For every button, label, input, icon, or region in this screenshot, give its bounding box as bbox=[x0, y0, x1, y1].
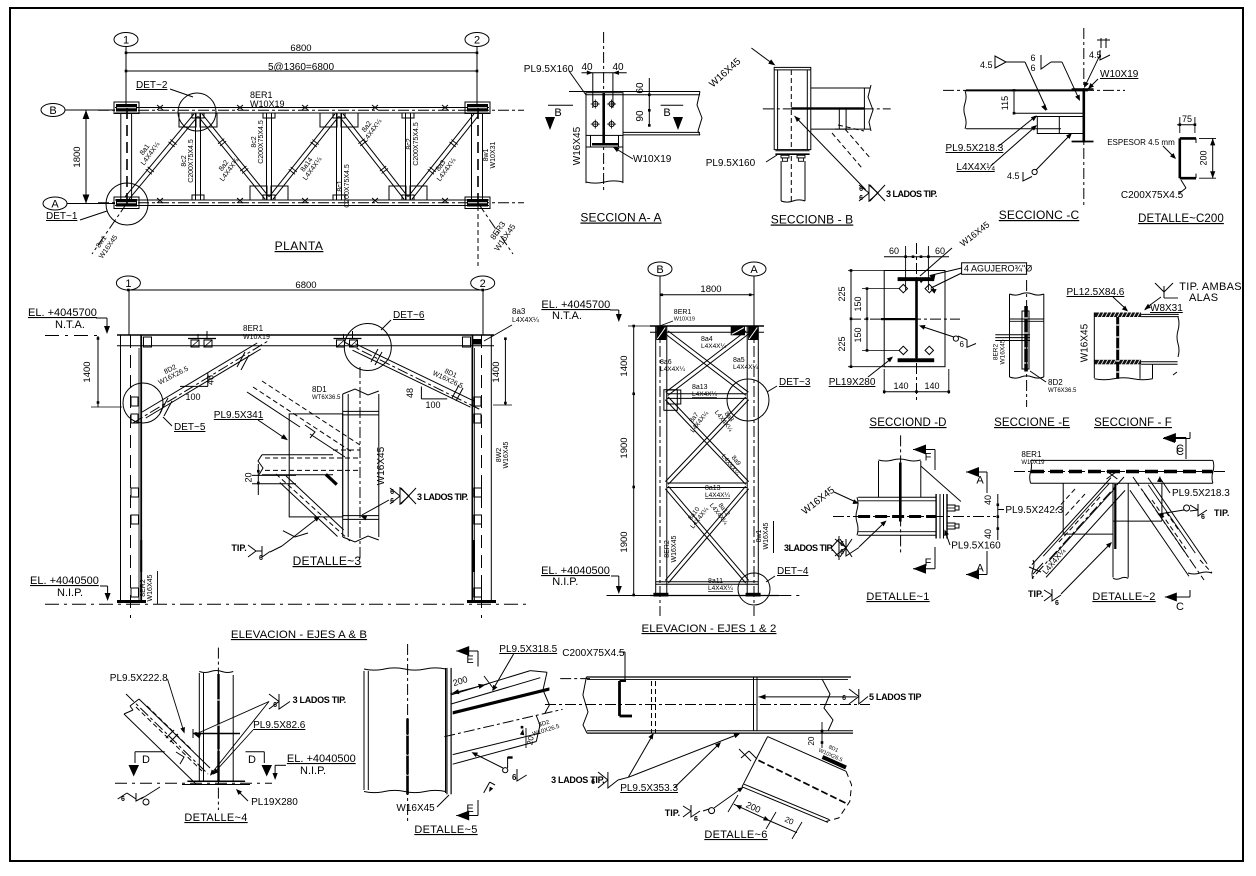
svg-text:4.5: 4.5 bbox=[1007, 171, 1020, 181]
svg-text:PL19X280: PL19X280 bbox=[251, 797, 298, 808]
svg-text:W16X45: W16X45 bbox=[572, 126, 583, 165]
svg-text:6: 6 bbox=[390, 489, 394, 496]
svg-text:6800: 6800 bbox=[290, 43, 311, 54]
svg-text:SECCIONE -E: SECCIONE -E bbox=[994, 417, 1070, 429]
svg-text:ESPESOR 4.5 mm: ESPESOR 4.5 mm bbox=[1107, 138, 1175, 147]
svg-text:PL9.5X82.6: PL9.5X82.6 bbox=[253, 720, 306, 731]
svg-text:W16X45: W16X45 bbox=[376, 446, 387, 485]
svg-text:DET~2: DET~2 bbox=[136, 80, 168, 91]
svg-text:8a13: 8a13 bbox=[705, 485, 721, 492]
svg-text:6: 6 bbox=[859, 186, 863, 193]
svg-text:1400: 1400 bbox=[619, 355, 630, 376]
svg-text:TIP.: TIP. bbox=[1028, 589, 1043, 599]
svg-text:N.I.P.: N.I.P. bbox=[300, 765, 326, 777]
svg-text:6: 6 bbox=[694, 816, 698, 823]
svg-text:4 AGUJERO¾"Ø: 4 AGUJERO¾"Ø bbox=[964, 264, 1032, 274]
svg-text:L4X4X¼: L4X4X¼ bbox=[701, 343, 727, 350]
svg-text:F: F bbox=[925, 557, 932, 569]
svg-text:8ER1: 8ER1 bbox=[243, 324, 264, 333]
svg-text:A: A bbox=[976, 563, 984, 575]
svg-text:DETALLE~4: DETALLE~4 bbox=[184, 812, 247, 824]
svg-text:DETALLE~6: DETALLE~6 bbox=[704, 829, 767, 841]
svg-text:40: 40 bbox=[983, 495, 993, 505]
svg-text:8W2: 8W2 bbox=[496, 448, 503, 463]
svg-text:SECCION A- A: SECCION A- A bbox=[580, 211, 661, 225]
svg-text:8ER2: 8ER2 bbox=[664, 540, 671, 558]
svg-text:40: 40 bbox=[612, 62, 624, 73]
svg-text:DETALLE~2: DETALLE~2 bbox=[1092, 591, 1155, 603]
svg-text:L4X4X¼: L4X4X¼ bbox=[733, 364, 759, 371]
svg-text:SECCIONC -C: SECCIONC -C bbox=[999, 208, 1080, 222]
svg-text:L4X4X¼: L4X4X¼ bbox=[705, 492, 731, 499]
svg-text:SECCIOND -D: SECCIOND -D bbox=[869, 417, 946, 429]
svg-text:W16X45: W16X45 bbox=[1080, 323, 1091, 362]
svg-text:W16X45: W16X45 bbox=[147, 574, 154, 601]
svg-text:20: 20 bbox=[244, 472, 254, 482]
svg-text:W10X19: W10X19 bbox=[1100, 69, 1139, 80]
svg-text:8ER2: 8ER2 bbox=[993, 343, 1000, 360]
svg-text:48: 48 bbox=[405, 388, 415, 398]
svg-text:ALAS: ALAS bbox=[1189, 292, 1218, 304]
svg-text:40: 40 bbox=[983, 529, 993, 539]
svg-text:60: 60 bbox=[935, 246, 945, 256]
svg-text:L4X4X¼: L4X4X¼ bbox=[660, 366, 686, 373]
svg-text:C200X75X4.5: C200X75X4.5 bbox=[1121, 190, 1184, 201]
svg-text:8c1: 8c1 bbox=[337, 180, 344, 191]
svg-text:PL9.5X160: PL9.5X160 bbox=[524, 64, 574, 75]
svg-text:6: 6 bbox=[1030, 53, 1035, 63]
svg-text:PL12.5X84.6: PL12.5X84.6 bbox=[1067, 287, 1125, 298]
svg-text:C: C bbox=[1176, 443, 1184, 455]
svg-text:DET~6: DET~6 bbox=[393, 310, 425, 321]
svg-text:D: D bbox=[248, 754, 256, 766]
svg-text:L4X4X¼: L4X4X¼ bbox=[708, 585, 734, 592]
svg-text:1900: 1900 bbox=[619, 437, 630, 458]
svg-text:6: 6 bbox=[859, 195, 863, 202]
svg-text:W16X45: W16X45 bbox=[503, 441, 510, 468]
svg-text:A: A bbox=[976, 475, 984, 487]
svg-text:ELEVACION - EJES 1 & 2: ELEVACION - EJES 1 & 2 bbox=[642, 623, 777, 635]
svg-text:W10X31: W10X31 bbox=[490, 141, 497, 168]
svg-text:DET~5: DET~5 bbox=[174, 422, 206, 433]
svg-text:1800: 1800 bbox=[72, 146, 83, 167]
svg-text:8ER1: 8ER1 bbox=[1021, 450, 1042, 459]
svg-text:6: 6 bbox=[273, 702, 277, 709]
svg-text:5@1360=6800: 5@1360=6800 bbox=[268, 62, 334, 73]
svg-text:N.T.A.: N.T.A. bbox=[55, 319, 85, 331]
svg-text:6: 6 bbox=[1055, 600, 1059, 607]
svg-text:E: E bbox=[466, 803, 473, 815]
svg-text:6: 6 bbox=[1201, 514, 1205, 521]
svg-text:1400: 1400 bbox=[82, 361, 93, 382]
svg-text:W10X19: W10X19 bbox=[633, 154, 672, 165]
svg-text:DETALLE~5: DETALLE~5 bbox=[414, 824, 477, 836]
svg-text:225: 225 bbox=[837, 286, 847, 301]
svg-text:SECCIONB - B: SECCIONB - B bbox=[771, 213, 854, 227]
svg-text:DET~1: DET~1 bbox=[46, 211, 78, 222]
svg-text:N.T.A.: N.T.A. bbox=[552, 310, 582, 322]
svg-text:3LADOS TIP.: 3LADOS TIP. bbox=[784, 543, 833, 553]
svg-text:8w1: 8w1 bbox=[483, 148, 490, 161]
svg-text:140: 140 bbox=[924, 381, 939, 391]
svg-text:W16X45: W16X45 bbox=[671, 535, 678, 562]
svg-text:DETALLE~1: DETALLE~1 bbox=[866, 591, 929, 603]
svg-text:6: 6 bbox=[840, 549, 844, 556]
svg-text:150: 150 bbox=[853, 327, 863, 342]
svg-text:PL9.5X341: PL9.5X341 bbox=[214, 410, 264, 421]
svg-text:8a4: 8a4 bbox=[701, 336, 713, 343]
svg-text:6: 6 bbox=[591, 779, 595, 786]
svg-text:225: 225 bbox=[837, 336, 847, 351]
svg-text:1400: 1400 bbox=[491, 361, 502, 382]
svg-text:100: 100 bbox=[185, 392, 200, 402]
svg-text:8ER2: 8ER2 bbox=[140, 579, 147, 597]
svg-text:WT6X36.5: WT6X36.5 bbox=[312, 395, 341, 401]
svg-text:100: 100 bbox=[425, 400, 440, 410]
svg-text:N.I.P.: N.I.P. bbox=[57, 587, 83, 599]
svg-text:8c2: 8c2 bbox=[181, 155, 188, 166]
svg-text:8a6: 8a6 bbox=[660, 359, 672, 366]
svg-text:6: 6 bbox=[842, 695, 846, 702]
svg-text:8ER1: 8ER1 bbox=[674, 309, 692, 316]
svg-text:W10X19: W10X19 bbox=[243, 334, 270, 341]
svg-text:B: B bbox=[656, 264, 663, 276]
svg-text:150: 150 bbox=[853, 296, 863, 311]
svg-text:115: 115 bbox=[1000, 96, 1010, 110]
svg-text:E: E bbox=[466, 654, 473, 666]
svg-text:8a3: 8a3 bbox=[512, 307, 526, 316]
svg-text:8a5: 8a5 bbox=[733, 357, 745, 364]
svg-text:3 LADOS TIP.: 3 LADOS TIP. bbox=[417, 492, 468, 502]
svg-text:PL9.5X353.3: PL9.5X353.3 bbox=[620, 783, 678, 794]
svg-text:PL9.5X160: PL9.5X160 bbox=[706, 158, 756, 169]
svg-text:5 LADOS TIP: 5 LADOS TIP bbox=[869, 692, 922, 702]
svg-text:B: B bbox=[663, 107, 670, 119]
svg-text:60: 60 bbox=[889, 246, 899, 256]
svg-text:2: 2 bbox=[480, 278, 486, 290]
svg-text:C200X75X4.5: C200X75X4.5 bbox=[188, 139, 195, 183]
svg-text:L4X4X¼: L4X4X¼ bbox=[692, 391, 718, 398]
svg-text:6: 6 bbox=[121, 796, 125, 803]
svg-text:PLANTA: PLANTA bbox=[275, 239, 324, 253]
svg-text:W8X31: W8X31 bbox=[1150, 303, 1183, 314]
svg-text:8c2: 8c2 bbox=[406, 138, 413, 149]
svg-text:48: 48 bbox=[206, 375, 216, 385]
svg-text:40: 40 bbox=[581, 62, 593, 73]
svg-text:L4X4X¼: L4X4X¼ bbox=[512, 317, 539, 324]
svg-text:DETALLE~C200: DETALLE~C200 bbox=[1138, 213, 1224, 225]
svg-text:8c2: 8c2 bbox=[251, 136, 258, 147]
svg-text:A: A bbox=[750, 264, 758, 276]
svg-text:C200X75X4.5: C200X75X4.5 bbox=[413, 122, 420, 166]
svg-text:6: 6 bbox=[1030, 63, 1035, 73]
svg-text:200: 200 bbox=[1199, 150, 1209, 165]
svg-text:75: 75 bbox=[1182, 114, 1192, 124]
svg-text:1: 1 bbox=[125, 278, 131, 290]
svg-text:C: C bbox=[1176, 601, 1184, 613]
svg-text:PL9.5X218.3: PL9.5X218.3 bbox=[946, 143, 1004, 154]
svg-text:B: B bbox=[554, 107, 561, 119]
svg-text:6: 6 bbox=[259, 555, 263, 562]
svg-text:6800: 6800 bbox=[295, 280, 316, 291]
svg-text:90: 90 bbox=[635, 110, 646, 122]
svg-text:PL9.5X160: PL9.5X160 bbox=[951, 541, 1001, 552]
svg-text:8D1: 8D1 bbox=[312, 385, 327, 394]
svg-text:8D2: 8D2 bbox=[1048, 378, 1063, 387]
svg-text:C200X75X4.5: C200X75X4.5 bbox=[562, 648, 625, 659]
svg-text:6: 6 bbox=[390, 498, 394, 505]
svg-text:6: 6 bbox=[840, 541, 844, 548]
svg-text:DETALLE~3: DETALLE~3 bbox=[293, 554, 362, 568]
svg-text:PL9.5X222.8: PL9.5X222.8 bbox=[110, 673, 168, 684]
svg-text:8a11: 8a11 bbox=[708, 578, 723, 585]
svg-text:PL19X280: PL19X280 bbox=[829, 377, 876, 388]
svg-text:TIP.: TIP. bbox=[665, 808, 680, 818]
svg-text:140: 140 bbox=[893, 381, 908, 391]
svg-text:EL. +4040500: EL. +4040500 bbox=[287, 753, 356, 765]
svg-text:8w1: 8w1 bbox=[756, 529, 763, 542]
svg-text:W10X19: W10X19 bbox=[674, 317, 695, 323]
svg-text:PL9.5X318.5: PL9.5X318.5 bbox=[499, 644, 557, 655]
svg-text:1900: 1900 bbox=[619, 531, 630, 552]
svg-text:PL9.5X242.3: PL9.5X242.3 bbox=[1005, 505, 1063, 516]
svg-text:2: 2 bbox=[474, 35, 480, 47]
svg-text:WT6X36.5: WT6X36.5 bbox=[1048, 388, 1077, 394]
svg-text:6: 6 bbox=[960, 340, 965, 349]
svg-text:8a13: 8a13 bbox=[692, 384, 708, 391]
svg-text:60: 60 bbox=[635, 82, 646, 94]
svg-text:3 LADOS TIP.: 3 LADOS TIP. bbox=[886, 189, 937, 199]
svg-text:W16X45: W16X45 bbox=[396, 803, 435, 814]
svg-text:TIP.: TIP. bbox=[1214, 508, 1229, 518]
svg-text:C200X75X4.5: C200X75X4.5 bbox=[258, 120, 265, 164]
svg-text:3 LADOS TIP.: 3 LADOS TIP. bbox=[293, 695, 346, 705]
svg-text:L4X4X¼: L4X4X¼ bbox=[956, 161, 995, 173]
svg-text:ELEVACION - EJES A & B: ELEVACION - EJES A & B bbox=[231, 629, 367, 641]
svg-text:DET~3: DET~3 bbox=[779, 377, 811, 388]
svg-text:W16X45: W16X45 bbox=[1000, 339, 1007, 364]
svg-text:EL. +4045700: EL. +4045700 bbox=[28, 307, 97, 319]
svg-text:1800: 1800 bbox=[700, 284, 721, 295]
svg-text:N.I.P.: N.I.P. bbox=[552, 576, 578, 588]
svg-text:SECCIONF - F: SECCIONF - F bbox=[1094, 417, 1172, 429]
svg-text:1: 1 bbox=[123, 35, 129, 47]
svg-text:B: B bbox=[49, 105, 56, 117]
svg-text:W16X45: W16X45 bbox=[763, 522, 770, 549]
svg-text:20: 20 bbox=[807, 736, 816, 745]
svg-text:EL. +4040500: EL. +4040500 bbox=[30, 575, 99, 587]
svg-text:3 LADOS TIP.: 3 LADOS TIP. bbox=[551, 775, 604, 785]
svg-text:6: 6 bbox=[512, 773, 517, 782]
svg-text:4.5: 4.5 bbox=[980, 60, 993, 70]
svg-text:F: F bbox=[925, 452, 932, 464]
svg-text:DET~4: DET~4 bbox=[777, 566, 809, 577]
svg-text:W10X19: W10X19 bbox=[250, 99, 285, 109]
svg-text:PL9.5X218.3: PL9.5X218.3 bbox=[1172, 488, 1230, 499]
svg-text:C200X75X4.5: C200X75X4.5 bbox=[344, 164, 351, 208]
svg-text:A: A bbox=[51, 199, 59, 211]
svg-text:TIP.: TIP. bbox=[231, 543, 246, 553]
svg-text:D: D bbox=[142, 754, 150, 766]
